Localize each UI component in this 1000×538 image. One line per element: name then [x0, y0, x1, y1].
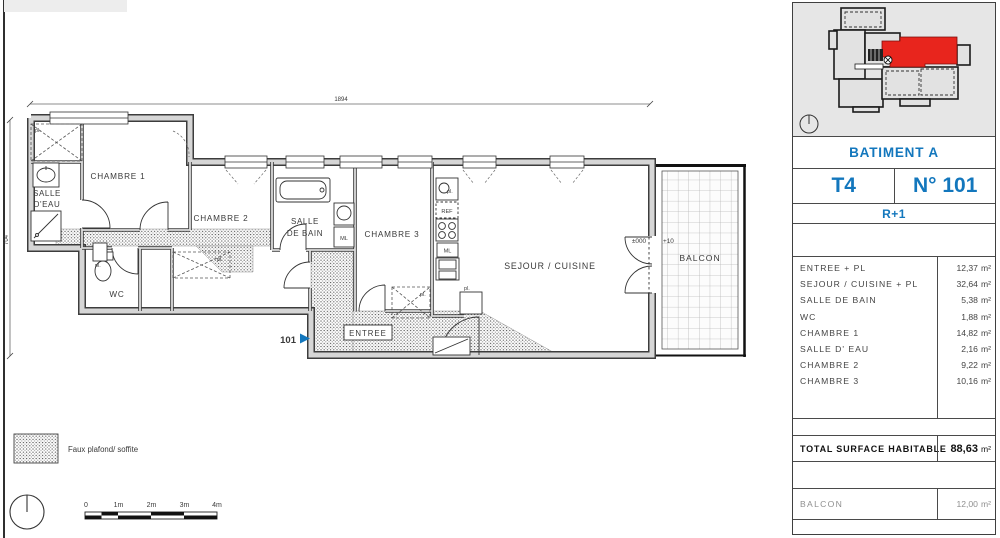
total-row: TOTAL SURFACE HABITABLE 88,63m² [793, 436, 995, 462]
label-salle-deau-2: D'EAU [34, 200, 61, 209]
unit-number: 101 [280, 335, 297, 346]
floor-label: R+1 [882, 207, 906, 221]
sejour-closet-box [460, 292, 482, 314]
tag-pl-3: pl. [420, 292, 426, 298]
legend: Faux plafond/ soffite [14, 434, 138, 463]
area-name: SEJOUR / CUISINE + PL [793, 279, 938, 289]
area-name: ENTREE + PL [793, 263, 938, 273]
title-block-panel: BATIMENT A T4 N° 101 R+1 ENTREE + PL 12,… [792, 2, 996, 535]
balcony-label: BALCON [793, 499, 938, 509]
area-name: SALLE D' EAU [793, 344, 938, 354]
area-value: 5,38 [961, 295, 978, 305]
spacer [793, 419, 995, 436]
dimension-top: 1894 [27, 97, 653, 107]
table-row: WC 1,88m² [793, 309, 995, 325]
label-chambre3: CHAMBRE 3 [365, 230, 420, 239]
tag-pl-1: pl. [35, 128, 41, 134]
table-row: SALLE DE BAIN 5,38m² [793, 292, 995, 308]
table-row: ENTREE + PL 12,37m² [793, 260, 995, 276]
areas-column-divider [937, 257, 938, 418]
scale-bar: 0 1m 2m 3m 4m [84, 502, 222, 519]
table-row: CHAMBRE 1 14,82m² [793, 325, 995, 341]
level-balcony: +10 [663, 238, 674, 245]
area-name: CHAMBRE 1 [793, 328, 938, 338]
label-salle-bain-1: SALLE [291, 217, 319, 226]
label-balcon: BALCON [679, 253, 720, 263]
area-name: WC [793, 312, 938, 322]
spacer [793, 462, 995, 489]
scale-tick-0: 0 [84, 502, 88, 509]
scale-tick-2: 2m [147, 502, 157, 509]
area-unit: m² [981, 344, 991, 354]
spacer [793, 520, 995, 534]
label-salle-deau-1: SALLE [33, 189, 61, 198]
tag-ref: REF [441, 209, 453, 215]
entry-cabinet [433, 337, 470, 355]
key-plan-drawing [793, 3, 994, 136]
area-value: 12,37 [956, 263, 978, 273]
scale-tick-4: 4m [212, 502, 222, 509]
area-value: 10,16 [956, 376, 978, 386]
area-unit: m² [981, 360, 991, 370]
dim-height: 704 [4, 234, 10, 245]
area-value: 14,82 [956, 328, 978, 338]
tag-pl-6: pl. [95, 263, 101, 269]
area-value: 2,16 [961, 344, 978, 354]
apartment-number: N° 101 [895, 169, 995, 203]
sdb-basin [334, 203, 354, 225]
area-value: 1,88 [961, 312, 978, 322]
total-column-divider [937, 436, 938, 461]
legend-label: Faux plafond/ soffite [68, 445, 138, 454]
balcony-unit: m² [981, 499, 991, 509]
area-value: 32,64 [956, 279, 978, 289]
label-salle-bain-2: DE BAIN [287, 229, 323, 238]
stairwell-symbol [884, 56, 892, 64]
balcony-row: BALCON 12,00m² [793, 489, 995, 520]
floor-row: R+1 [793, 204, 995, 224]
label-chambre1: CHAMBRE 1 [91, 172, 146, 181]
area-name: CHAMBRE 2 [793, 360, 938, 370]
tag-ml-sdb: ML [340, 236, 348, 242]
table-row: SEJOUR / CUISINE + PL 32,64m² [793, 276, 995, 292]
entree-label-box: ENTREE [344, 325, 392, 340]
area-unit: m² [981, 376, 991, 386]
total-unit: m² [981, 444, 991, 454]
bathtub [276, 178, 330, 202]
building-row: BATIMENT A [793, 137, 995, 169]
table-row: CHAMBRE 3 10,16m² [793, 373, 995, 389]
floor-plan: CHAMBRE 1 CHAMBRE 2 CHAMBRE 3 SALLE D'EA… [0, 0, 790, 538]
north-arrow-icon [10, 495, 44, 529]
highlighted-unit [882, 37, 957, 67]
area-unit: m² [981, 279, 991, 289]
scale-tick-1: 1m [114, 502, 124, 509]
type-number-row: T4 N° 101 [793, 169, 995, 204]
area-unit: m² [981, 263, 991, 273]
scale-tick-3: 3m [180, 502, 190, 509]
tag-pl-2: pl. [217, 257, 223, 263]
area-name: SALLE DE BAIN [793, 295, 938, 305]
area-unit: m² [981, 312, 991, 322]
balcony-value: 12,00 [956, 499, 978, 509]
building-label: BATIMENT A [849, 145, 939, 160]
areas-table: ENTREE + PL 12,37m² SEJOUR / CUISINE + P… [793, 257, 995, 419]
tag-pl-4: pl. [447, 189, 453, 195]
unit-marker: 101 [280, 334, 310, 347]
total-value: 88,63 [950, 443, 978, 455]
salle-deau-sink [33, 163, 59, 187]
level-zero: ±000 [632, 238, 647, 245]
table-row: SALLE D' EAU 2,16m² [793, 341, 995, 357]
label-sejour: SEJOUR / CUISINE [504, 261, 596, 271]
total-label: TOTAL SURFACE HABITABLE [793, 444, 947, 454]
shower [31, 211, 61, 241]
table-row: CHAMBRE 2 9,22m² [793, 357, 995, 373]
wc-nook-box [93, 243, 107, 261]
label-wc: WC [109, 290, 124, 299]
balcony-column-divider [937, 489, 938, 519]
label-chambre2: CHAMBRE 2 [194, 214, 249, 223]
key-plan [793, 3, 995, 137]
area-unit: m² [981, 295, 991, 305]
dim-width: 1894 [334, 97, 348, 103]
dimension-left: 704 [4, 117, 13, 359]
spacer [793, 224, 995, 257]
label-entree: ENTREE [349, 329, 387, 338]
apartment-type: T4 [793, 169, 895, 203]
tag-pl-5: pl. [464, 286, 470, 292]
tag-ml-kitchen: ML [444, 249, 452, 255]
area-unit: m² [981, 328, 991, 338]
area-name: CHAMBRE 3 [793, 376, 938, 386]
area-value: 9,22 [961, 360, 978, 370]
